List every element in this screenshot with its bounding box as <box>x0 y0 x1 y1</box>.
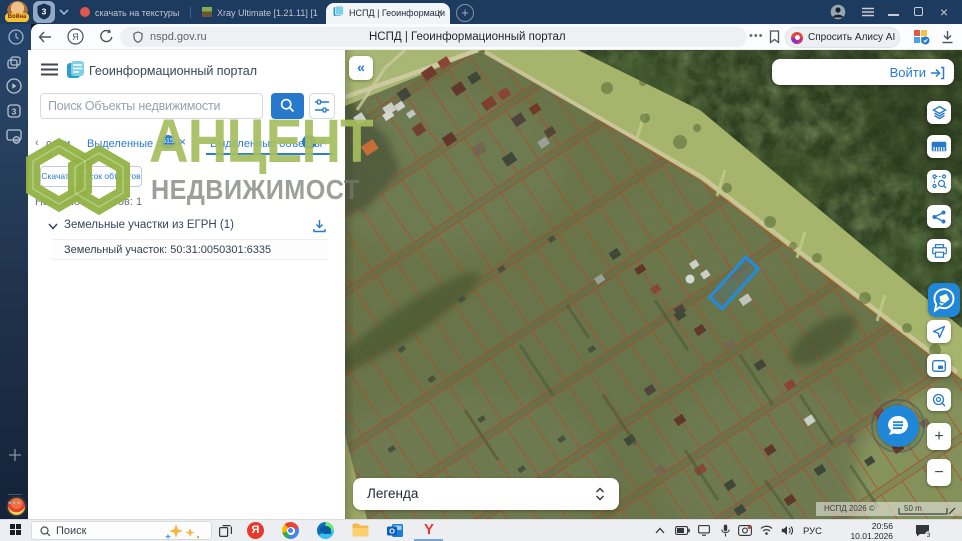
svg-text:Я: Я <box>72 32 79 42</box>
svg-text:3: 3 <box>42 7 47 17</box>
svg-text:3: 3 <box>927 532 931 538</box>
svg-text:a: a <box>15 138 18 144</box>
svg-text:O: O <box>389 527 395 536</box>
svg-text:3: 3 <box>12 107 17 117</box>
